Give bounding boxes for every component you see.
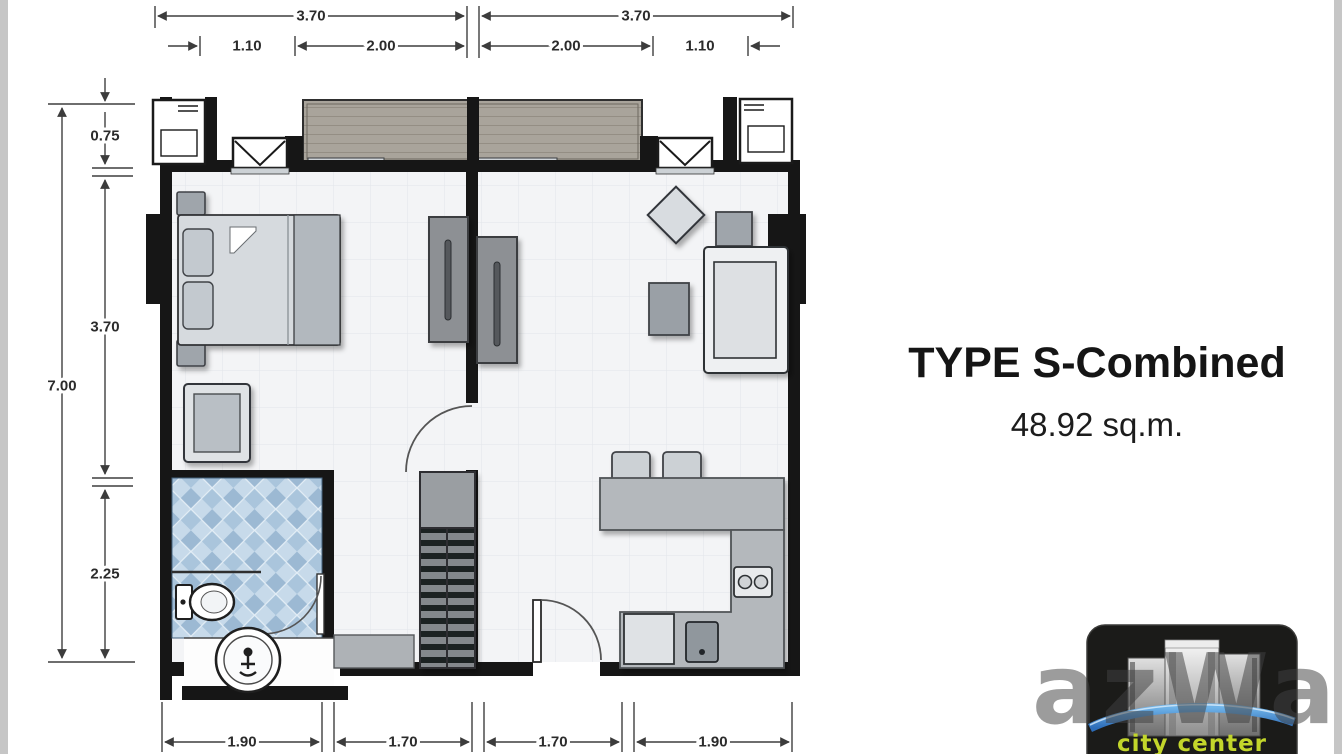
round-washbasin-icon: [216, 628, 280, 692]
kitchen-sink-icon: [686, 622, 718, 662]
pillow: [183, 229, 213, 276]
appliance: [624, 614, 674, 664]
dim-label: 2.00: [366, 38, 395, 55]
wardrobe: [429, 217, 468, 342]
ottoman: [649, 283, 689, 335]
nightstand: [177, 192, 205, 215]
area-label: 48.92 sq.m.: [862, 406, 1332, 444]
vanity-counter: [334, 635, 414, 668]
tv-cabinet: [477, 237, 517, 363]
logo-caption: city center: [1117, 731, 1267, 754]
city-center-logo: city center: [1086, 624, 1298, 754]
dim-label: 3.70: [621, 8, 650, 25]
kitchen-island: [600, 478, 784, 530]
dim-label: 3.70: [296, 8, 325, 25]
dimension-left: 7.00 0.75 3.70 2.25: [47, 78, 135, 662]
dim-label: 7.00: [47, 378, 76, 395]
city-center-logo-graphic: city center: [1086, 624, 1298, 754]
two-burner-stove-icon: [734, 567, 772, 597]
page-title: TYPE S-Combined: [862, 338, 1332, 388]
air-conditioner-unit: [740, 99, 792, 163]
bay-window-icon: [231, 138, 289, 174]
floorplan-page: 3.70 3.70 1.10 2.00 2.00 1.10 7.00 0.75 …: [0, 0, 1342, 754]
toilet-icon: [176, 584, 234, 620]
title-block: TYPE S-Combined 48.92 sq.m.: [862, 338, 1332, 444]
sofa: [704, 247, 788, 373]
pillow: [183, 282, 213, 329]
dim-label: 2.00: [551, 38, 580, 55]
shelf-unit: [420, 472, 475, 668]
air-conditioner-unit: [153, 100, 205, 164]
left-border-strip: [0, 0, 8, 754]
dim-label: 1.90: [698, 734, 727, 751]
dim-label: 1.70: [538, 734, 567, 751]
dim-label: 2.25: [90, 566, 119, 583]
dim-label: 1.10: [232, 38, 261, 55]
dimension-bottom: 1.90 1.70 1.70 1.90: [162, 702, 792, 752]
dim-label: 3.70: [90, 319, 119, 336]
dim-label: 1.10: [685, 38, 714, 55]
dim-label: 0.75: [90, 128, 119, 145]
right-border-strip: [1334, 0, 1342, 754]
dim-label: 1.90: [227, 734, 256, 751]
armchair: [184, 384, 250, 462]
dimension-top: 3.70 3.70 1.10 2.00 2.00 1.10: [155, 6, 793, 58]
double-bed: [178, 215, 340, 345]
dim-label: 1.70: [388, 734, 417, 751]
side-table: [716, 212, 752, 246]
bay-window-icon: [656, 138, 714, 174]
